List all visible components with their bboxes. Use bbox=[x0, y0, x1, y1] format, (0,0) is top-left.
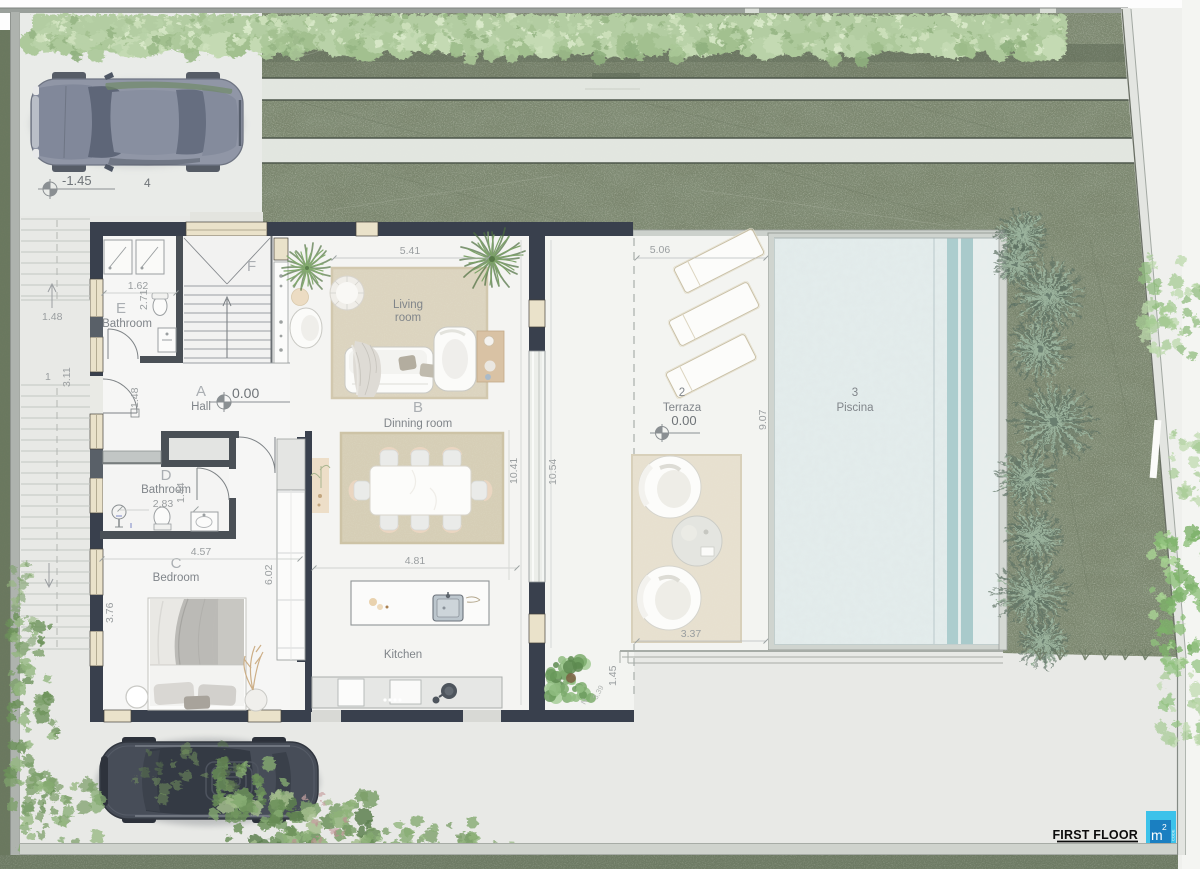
svg-text:2.71: 2.71 bbox=[138, 289, 150, 310]
svg-text:3.11: 3.11 bbox=[61, 367, 73, 387]
svg-text:B: B bbox=[413, 399, 423, 416]
svg-text:E: E bbox=[116, 300, 126, 317]
svg-text:3: 3 bbox=[852, 387, 858, 399]
svg-text:D: D bbox=[161, 467, 172, 484]
svg-text:1: 1 bbox=[45, 371, 51, 383]
svg-text:C: C bbox=[171, 555, 182, 572]
svg-text:5.41: 5.41 bbox=[400, 245, 421, 257]
svg-text:-1.45: -1.45 bbox=[62, 173, 92, 188]
svg-text:4.57: 4.57 bbox=[191, 546, 212, 558]
svg-text:1.48: 1.48 bbox=[42, 311, 63, 323]
svg-text:2.83: 2.83 bbox=[153, 498, 174, 510]
svg-text:FIRST FLOOR: FIRST FLOOR bbox=[1052, 828, 1138, 842]
svg-text:0.00: 0.00 bbox=[232, 385, 259, 401]
svg-text:Living: Living bbox=[393, 299, 423, 311]
svg-text:10.41: 10.41 bbox=[508, 458, 520, 484]
svg-text:10.54: 10.54 bbox=[547, 459, 559, 485]
svg-text:1.45: 1.45 bbox=[607, 665, 619, 686]
svg-text:2: 2 bbox=[679, 387, 685, 399]
svg-text:6.02: 6.02 bbox=[263, 564, 275, 585]
svg-text:3.37: 3.37 bbox=[681, 628, 702, 640]
svg-text:m: m bbox=[1151, 827, 1163, 843]
svg-text:Kitchen: Kitchen bbox=[384, 649, 422, 661]
svg-text:1.48: 1.48 bbox=[129, 387, 141, 408]
svg-text:Hall: Hall bbox=[191, 401, 211, 413]
svg-text:F: F bbox=[247, 258, 256, 275]
svg-text:room: room bbox=[395, 312, 421, 324]
svg-text:0.00: 0.00 bbox=[671, 413, 696, 428]
svg-text:2: 2 bbox=[1162, 822, 1167, 832]
svg-text:5.06: 5.06 bbox=[650, 244, 671, 256]
svg-text:1.44: 1.44 bbox=[175, 482, 187, 503]
svg-text:4: 4 bbox=[144, 176, 151, 190]
svg-text:9.07: 9.07 bbox=[757, 409, 769, 430]
svg-text:4.81: 4.81 bbox=[405, 555, 426, 567]
svg-text:CODE: CODE bbox=[1171, 829, 1176, 841]
svg-text:Bathroom: Bathroom bbox=[102, 318, 152, 330]
svg-text:Dinning room: Dinning room bbox=[384, 418, 452, 430]
svg-text:Piscina: Piscina bbox=[836, 402, 874, 414]
svg-text:3.76: 3.76 bbox=[104, 602, 116, 623]
svg-text:A: A bbox=[196, 383, 206, 400]
svg-text:Bedroom: Bedroom bbox=[153, 572, 200, 584]
